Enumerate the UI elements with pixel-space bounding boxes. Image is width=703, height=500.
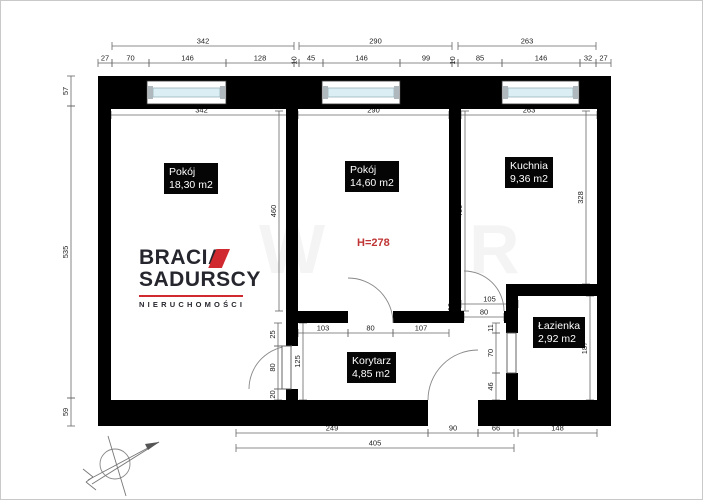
room-label: Pokój14,60 m2	[345, 161, 399, 192]
dimension-label: 59	[61, 408, 70, 416]
dimension-label: 128	[254, 54, 267, 63]
window-glass	[508, 88, 573, 97]
dimension-label: 105	[483, 295, 496, 304]
window-glass	[328, 88, 394, 97]
dimension-label: 10	[448, 56, 457, 64]
compass-icon	[83, 469, 93, 477]
dimension-label: 80	[480, 308, 488, 317]
window-glass	[153, 88, 220, 97]
dimension-label: 146	[181, 54, 194, 63]
dimension-label: 342	[197, 37, 210, 46]
wall	[506, 284, 597, 296]
ceiling-height-note: H=278	[357, 237, 390, 249]
room-label: Korytarz4,85 m2	[347, 352, 396, 383]
dimension-label: 45	[307, 54, 315, 63]
dimension-label: 70	[126, 54, 134, 63]
dimension-label: 405	[369, 439, 382, 448]
dimension-label: 146	[355, 54, 368, 63]
dimension-label: 20	[268, 390, 277, 398]
door-leaf	[282, 346, 291, 389]
wall	[286, 389, 298, 400]
wall	[597, 76, 611, 426]
dimension-label: 80	[268, 363, 277, 371]
dimension-label: 27	[599, 54, 607, 63]
wall	[298, 311, 348, 323]
logo-divider	[139, 295, 243, 297]
wall	[506, 373, 518, 400]
dimension-label: 90	[449, 424, 457, 433]
floor-plan: WR34229026327701461281045146991085146322…	[0, 0, 703, 500]
room-name: Łazienka	[538, 320, 580, 333]
dimension-label: 290	[369, 37, 382, 46]
room-label: Kuchnia9,36 m2	[505, 157, 553, 188]
dimension-label: 103	[317, 324, 330, 333]
door-swing-arc	[428, 350, 478, 400]
wall	[286, 109, 298, 346]
room-area: 18,30 m2	[169, 179, 213, 192]
dimension-label: 460	[269, 205, 278, 218]
room-area: 14,60 m2	[350, 177, 394, 190]
dimension-label: 146	[535, 54, 548, 63]
dimension-label: 46	[486, 382, 495, 390]
window-cap	[323, 86, 328, 99]
room-area: 2,92 m2	[538, 333, 580, 346]
wall	[449, 109, 461, 323]
dimension-label: 10	[290, 56, 299, 64]
wall	[98, 76, 111, 426]
dimension-label: 107	[415, 324, 428, 333]
wall	[478, 400, 611, 426]
room-name: Korytarz	[352, 355, 391, 368]
compass-icon	[86, 477, 93, 482]
watermark-text: R	[469, 210, 520, 288]
door-leaf	[507, 333, 516, 373]
logo-line-bracia: BRACIA	[139, 247, 261, 269]
logo-line-sadurscy: SADURSCY	[139, 269, 261, 291]
compass-icon	[86, 482, 96, 490]
wall	[98, 400, 428, 426]
room-area: 4,85 m2	[352, 368, 391, 381]
window-cap	[220, 86, 225, 99]
room-name: Pokój	[169, 166, 213, 179]
room-area: 9,36 m2	[510, 173, 548, 186]
dimension-label: 263	[521, 37, 534, 46]
agency-logo: BRACIA SADURSCY NIERUCHOMOŚCI	[139, 247, 261, 309]
dimension-label: 70	[486, 349, 495, 357]
dimension-label: 99	[422, 54, 430, 63]
room-name: Kuchnia	[510, 160, 548, 173]
dimension-label: 25	[268, 330, 277, 338]
door-swing-arc	[348, 278, 393, 323]
dimension-label: 125	[293, 355, 302, 368]
room-name: Pokój	[350, 164, 394, 177]
room-label: Pokój18,30 m2	[164, 163, 218, 194]
dimension-label: 85	[476, 54, 484, 63]
window-cap	[573, 86, 578, 99]
window-cap	[148, 86, 153, 99]
dimension-label: 11	[486, 324, 495, 332]
wall	[506, 296, 518, 333]
dimension-label: 80	[366, 324, 374, 333]
window-cap	[503, 86, 508, 99]
compass-icon	[100, 449, 130, 479]
dimension-label: 32	[584, 54, 592, 63]
dimension-label: 328	[576, 191, 585, 204]
logo-line-nieruchomosci: NIERUCHOMOŚCI	[139, 300, 261, 309]
dimension-label: 57	[61, 87, 70, 95]
floor-plan-drawing: WR34229026327701461281045146991085146322…	[1, 1, 703, 500]
compass-icon	[108, 436, 126, 496]
window-cap	[394, 86, 399, 99]
room-label: Łazienka2,92 m2	[533, 317, 585, 348]
dimension-label: 27	[101, 54, 109, 63]
dimension-label: 535	[61, 246, 70, 259]
